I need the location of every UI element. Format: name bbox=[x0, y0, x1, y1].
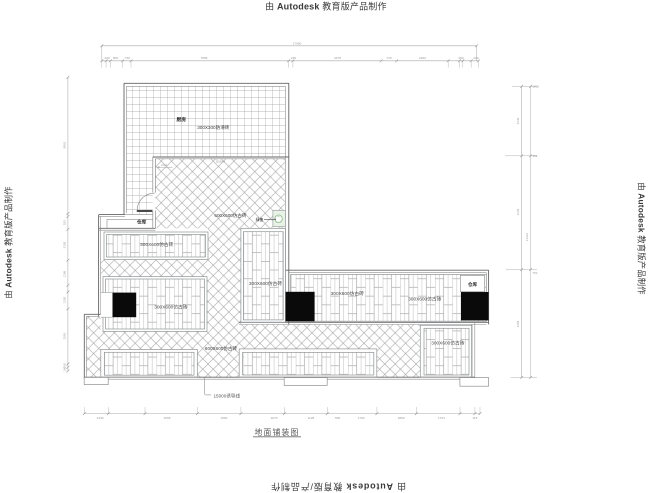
svg-text:300X600仿古砖: 300X600仿古砖 bbox=[408, 296, 442, 303]
svg-text:752: 752 bbox=[533, 271, 538, 275]
svg-text:由 Autodesk 教育版产品制作: 由 Autodesk 教育版产品制作 bbox=[4, 186, 14, 298]
svg-text:厨房: 厨房 bbox=[176, 116, 186, 123]
svg-text:1698: 1698 bbox=[164, 416, 171, 420]
svg-text:3146: 3146 bbox=[516, 117, 520, 124]
svg-text:2070: 2070 bbox=[271, 416, 278, 420]
svg-text:800: 800 bbox=[113, 56, 118, 60]
svg-text:600X600仿古砖: 600X600仿古砖 bbox=[214, 212, 247, 219]
svg-text:17560: 17560 bbox=[293, 41, 302, 45]
svg-text:525: 525 bbox=[63, 220, 67, 225]
svg-text:1800: 1800 bbox=[533, 85, 540, 89]
svg-text:230: 230 bbox=[291, 56, 296, 60]
svg-text:仓库: 仓库 bbox=[136, 219, 147, 226]
svg-text:720: 720 bbox=[386, 56, 391, 60]
svg-text:200: 200 bbox=[473, 56, 478, 60]
svg-text:730: 730 bbox=[125, 56, 130, 60]
svg-text:(1800): (1800) bbox=[217, 159, 225, 163]
svg-text:252: 252 bbox=[533, 154, 538, 158]
svg-text:1200: 1200 bbox=[63, 296, 67, 303]
svg-text:仓库: 仓库 bbox=[468, 281, 478, 288]
svg-text:2460: 2460 bbox=[419, 56, 426, 60]
svg-text:300X600仿古砖: 300X600仿古砖 bbox=[140, 241, 174, 248]
svg-text:2100: 2100 bbox=[63, 241, 67, 248]
svg-text:2110: 2110 bbox=[161, 163, 167, 167]
svg-text:1500: 1500 bbox=[220, 416, 227, 420]
svg-text:600X600仿古砖: 600X600仿古砖 bbox=[205, 345, 238, 352]
svg-text:2800: 2800 bbox=[398, 416, 405, 420]
svg-text:2583: 2583 bbox=[63, 332, 67, 339]
svg-text:300X600仿古砖: 300X600仿古砖 bbox=[154, 303, 188, 310]
svg-text:4478: 4478 bbox=[334, 56, 341, 60]
svg-text:500: 500 bbox=[335, 416, 340, 420]
svg-text:11312: 11312 bbox=[525, 233, 529, 241]
svg-text:1700: 1700 bbox=[358, 416, 365, 420]
svg-text:1128: 1128 bbox=[308, 416, 315, 420]
svg-text:8862: 8862 bbox=[63, 141, 67, 148]
svg-text:4406: 4406 bbox=[516, 320, 520, 327]
svg-text:由 Autodesk 教育版产品制作: 由 Autodesk 教育版产品制作 bbox=[637, 182, 647, 294]
svg-text:15000诱导线: 15000诱导线 bbox=[214, 393, 241, 400]
svg-text:280: 280 bbox=[458, 56, 463, 60]
svg-text:1723: 1723 bbox=[438, 416, 445, 420]
svg-text:由 Autodesk 教育版产品制作: 由 Autodesk 教育版产品制作 bbox=[265, 0, 387, 11]
svg-text:300X600仿古砖: 300X600仿古砖 bbox=[331, 290, 365, 297]
svg-text:1188: 1188 bbox=[63, 270, 67, 277]
svg-text:绿植: 绿植 bbox=[256, 217, 264, 222]
svg-text:300X300防滑砖: 300X300防滑砖 bbox=[197, 124, 230, 131]
svg-text:3146: 3146 bbox=[516, 208, 520, 215]
svg-text:1340: 1340 bbox=[97, 416, 104, 420]
svg-text:115: 115 bbox=[472, 416, 477, 420]
svg-text:200: 200 bbox=[104, 56, 109, 60]
svg-text:300X600仿古砖: 300X600仿古砖 bbox=[249, 280, 283, 287]
svg-text:300X600仿古砖: 300X600仿古砖 bbox=[431, 339, 465, 346]
svg-text:7568: 7568 bbox=[200, 56, 207, 60]
svg-text:160: 160 bbox=[63, 366, 67, 371]
svg-text:地面铺装图: 地面铺装图 bbox=[255, 427, 300, 437]
svg-text:由 Autodesk 教育版/产品制作: 由 Autodesk 教育版/产品制作 bbox=[270, 481, 406, 492]
